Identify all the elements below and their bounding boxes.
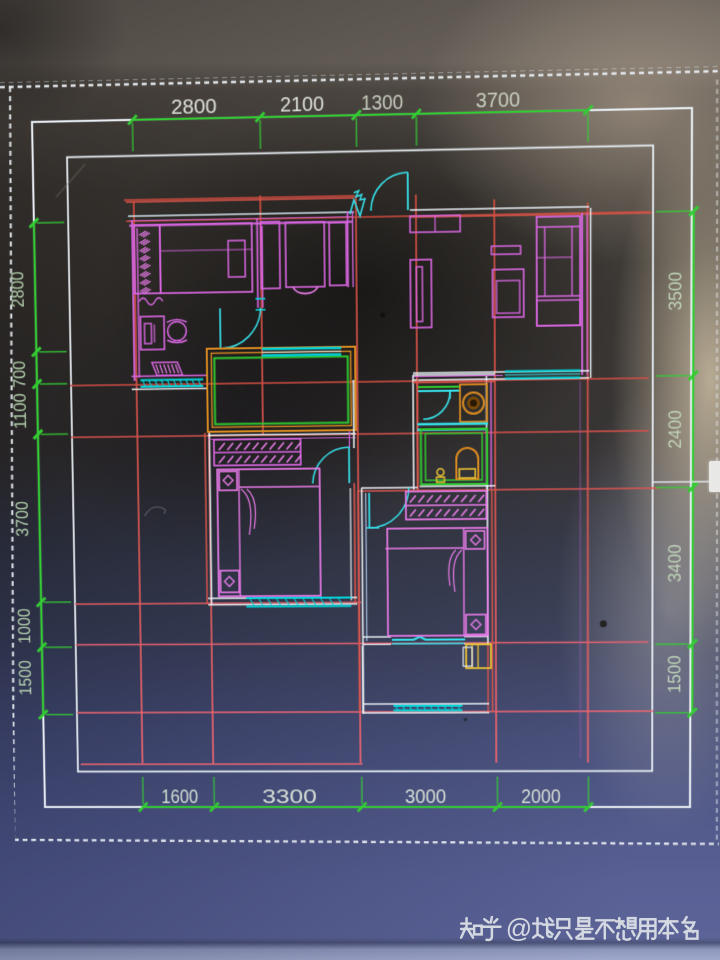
svg-text:@: @ [506,913,532,943]
